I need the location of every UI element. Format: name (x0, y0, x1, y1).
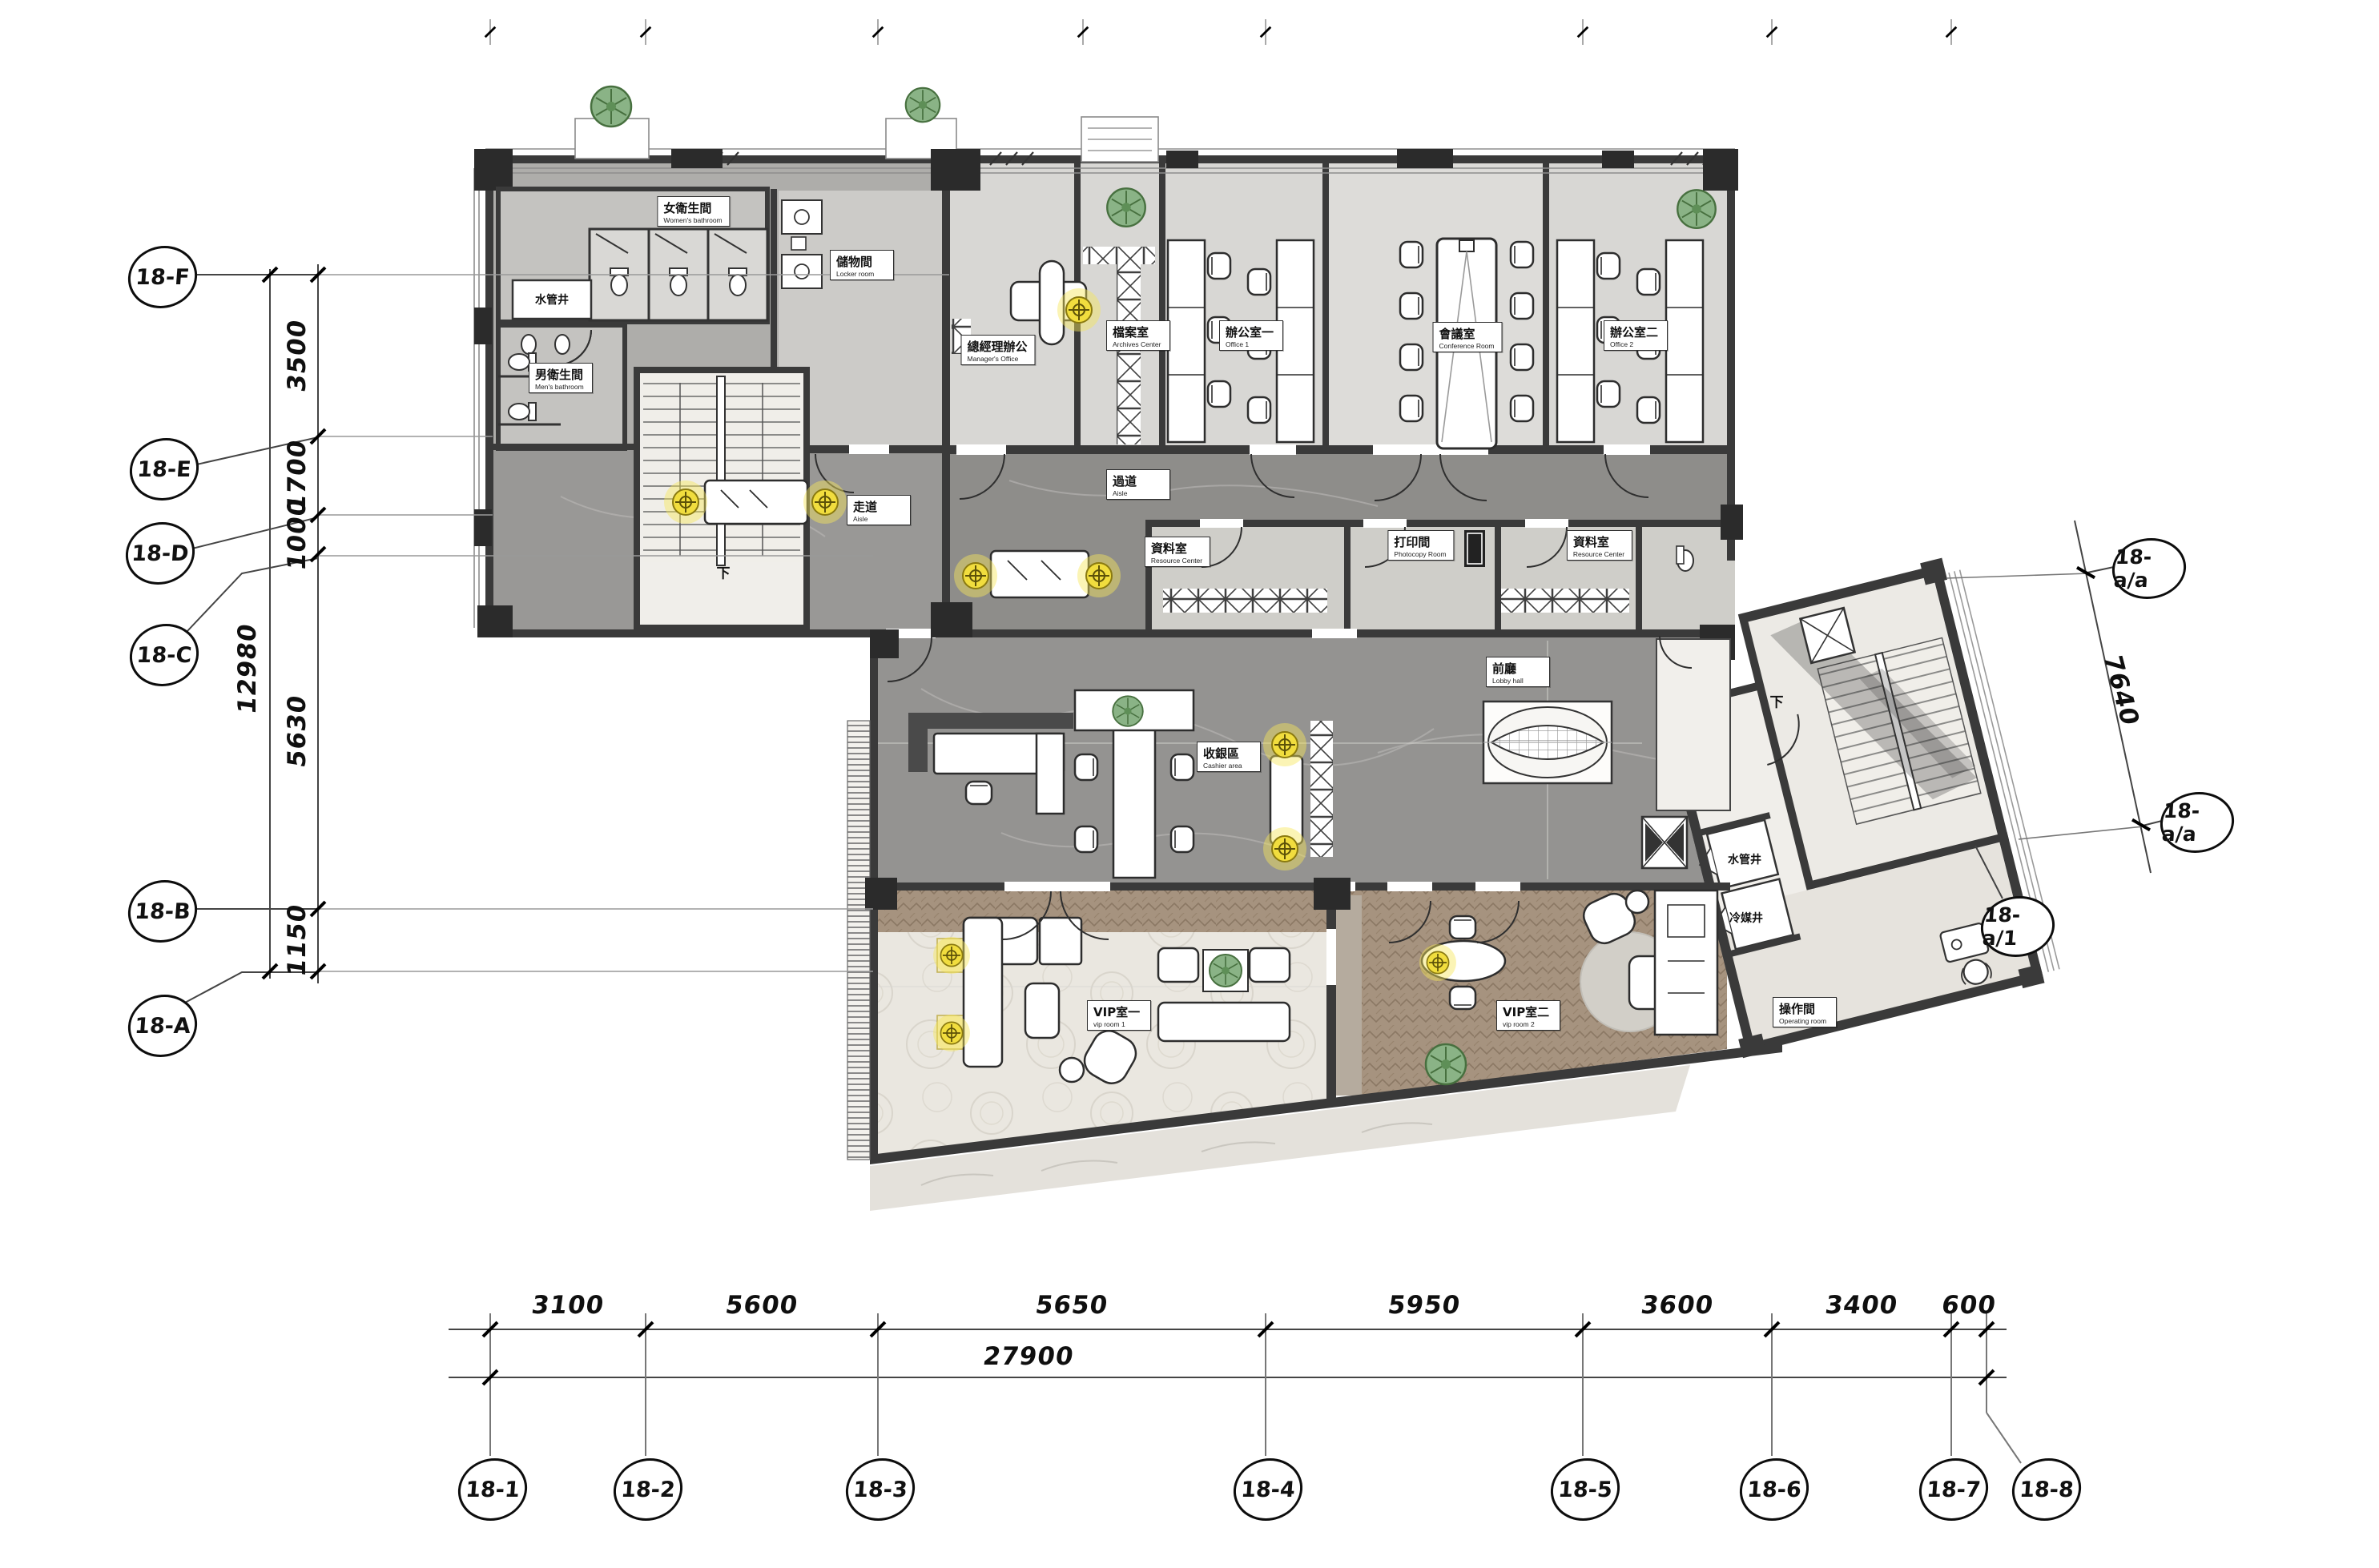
dim-3600: 3600 (1639, 1291, 1715, 1320)
label-mens-bathroom: 男衛生間Men's bathroom (529, 363, 593, 393)
grid-bubble-18-aa-top: 18-a/a (2110, 538, 2188, 599)
dim-5630: 5630 (283, 693, 312, 769)
label-lobby-hall: 前廳Lobby hall (1486, 657, 1550, 687)
dim-lines-bottom (449, 1329, 2007, 1377)
dim-12980: 12980 (233, 621, 262, 716)
grid-bubble-18-aa-bottom: 18-a/a (2158, 792, 2236, 853)
dim-5600: 5600 (723, 1291, 799, 1320)
dim-3100: 3100 (529, 1291, 606, 1320)
dim-27900: 27900 (981, 1342, 1076, 1371)
label-office-1: 辦公室一Office 1 (1219, 320, 1283, 351)
dim-3500: 3500 (283, 317, 312, 393)
label-pipe-shaft-1: 水管井 (535, 291, 569, 308)
label-refrigerant-shaft: 冷媒井 (1729, 910, 1763, 926)
label-resource-center-1: 資料室Resource Center (1145, 537, 1210, 567)
grid-bubble-18-a1: 18-a/1 (1978, 896, 2056, 957)
label-locker-room: 儲物間Locker room (830, 250, 894, 280)
floor-plan-canvas: 18-F 18-E 18-D 18-C 18-B 18-A 18-1 18-2 … (0, 0, 2379, 1568)
label-vip-room-2: VIP室二vip room 2 (1496, 1000, 1560, 1031)
plan-drawing (0, 0, 2379, 1568)
label-office-2: 辦公室二Office 2 (1604, 320, 1668, 351)
dim-1150: 1150 (283, 902, 312, 978)
label-cashier-area: 收銀區Cashier area (1197, 742, 1261, 772)
dim-5650: 5650 (1033, 1291, 1109, 1320)
dim-3400: 3400 (1823, 1291, 1899, 1320)
label-operating-room: 操作間Operating room (1773, 997, 1837, 1027)
label-resource-center-2: 資料室Resource Center (1567, 530, 1632, 561)
stair-down-label-1: 下 (717, 562, 731, 582)
dim-ticks-bottom (483, 1322, 1994, 1385)
label-photocopy-room: 打印間Photocopy Room (1387, 530, 1454, 561)
label-aisle-mid: 過道Aisle (1106, 469, 1170, 500)
dim-5950: 5950 (1386, 1291, 1462, 1320)
dim-600: 600 (1940, 1291, 1999, 1320)
grid-lines-bottom (490, 1313, 2021, 1463)
label-vip-room-1: VIP室一vip room 1 (1087, 1000, 1151, 1031)
top-grid-ticks (485, 19, 1957, 45)
label-conference-room: 會議室Conference Room (1433, 322, 1503, 352)
label-womens-bathroom: 女衛生間Women's bathroom (657, 196, 730, 227)
label-archives-center: 檔案室Archives Center (1106, 320, 1170, 351)
label-aisle-west: 走道Aisle (847, 495, 911, 525)
stair-down-label-2: 下 (1770, 691, 1784, 711)
label-pipe-shaft-2: 水管井 (1728, 851, 1761, 867)
dim-1000: 1000 (283, 496, 312, 572)
label-managers-office: 總經理辦公Manager's Office (960, 335, 1035, 365)
